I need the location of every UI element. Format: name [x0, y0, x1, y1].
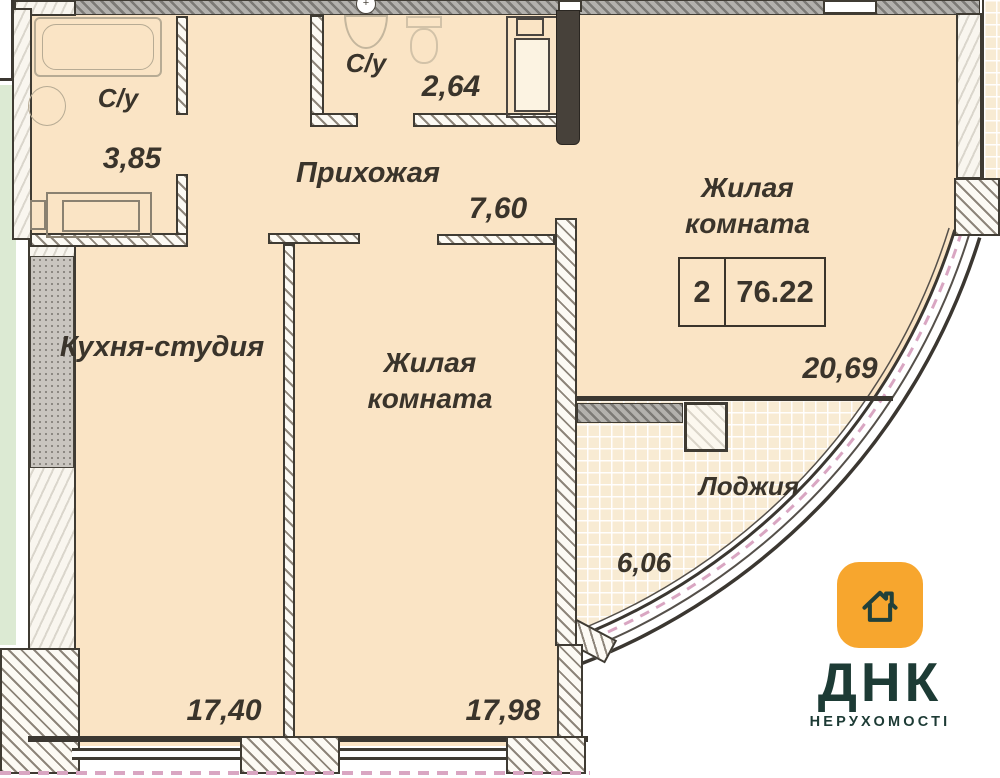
- wall-living-right: [956, 13, 982, 179]
- bathroom2-label: С/у: [336, 49, 396, 78]
- living-right-label: Жилая комната: [655, 170, 840, 242]
- wall-bathroom1-right-lower: [176, 174, 188, 236]
- wall-hallway-right: [437, 234, 555, 245]
- hallway-area: 7,60: [458, 192, 538, 225]
- kitchen-area: 17,40: [176, 694, 272, 727]
- bathroom1-label: С/у: [88, 84, 148, 113]
- column-loggia: [684, 402, 728, 452]
- wall-divider-living: [555, 218, 577, 646]
- logo-title: ДНК: [790, 650, 970, 714]
- wall-dark-vertical: [556, 10, 580, 145]
- cabinet-inner: [514, 38, 550, 112]
- logo-subtitle: НЕРУХОМОСТІ: [790, 714, 970, 730]
- toilet-tank: [406, 16, 442, 28]
- floor-plan: + С/у 3,85 С/у 2,64: [0, 0, 1000, 778]
- wall-divider-kitchen: [283, 244, 295, 738]
- pier-bottom-right: [506, 736, 586, 774]
- toilet: [410, 28, 438, 64]
- living-middle-line2: комната: [345, 381, 515, 417]
- bathtub-inner: [42, 24, 154, 70]
- loggia-boundary-line: [577, 396, 893, 401]
- bathroom2-area: 2,64: [406, 70, 496, 103]
- loggia-label: Лоджия: [686, 472, 812, 501]
- loggia-parapet: [577, 403, 683, 423]
- wall-bathroom1-right-upper: [176, 16, 188, 115]
- logo-badge: [837, 562, 923, 648]
- pier-bottom-mid: [240, 736, 340, 774]
- cabinet-top-box: [516, 18, 544, 36]
- pier-loggia: [557, 644, 583, 738]
- living-middle-line1: Жилая: [345, 345, 515, 381]
- bathroom1-area: 3,85: [92, 142, 172, 175]
- living-middle-label: Жилая комната: [345, 345, 515, 417]
- hallway-label: Прихожая: [288, 158, 448, 190]
- wall-hallway-left: [268, 233, 360, 244]
- wall-notch: [823, 0, 877, 14]
- column-facade-top: [954, 178, 1000, 236]
- column-corner: [0, 648, 80, 774]
- sink: [28, 86, 66, 126]
- window-bottom-2: [340, 748, 506, 760]
- axis-line-pink: [0, 771, 590, 775]
- wall-bathroom2-left: [310, 15, 324, 115]
- loggia-area: 6,06: [604, 548, 684, 579]
- living-right-area: 20,69: [792, 352, 888, 385]
- washing-machine-side: [30, 200, 46, 230]
- window-bottom-1: [72, 748, 240, 760]
- wall-left-upper: [12, 8, 32, 240]
- kitchen-label: Кухня-студия: [52, 332, 272, 364]
- living-middle-area: 17,98: [455, 694, 551, 727]
- living-right-line1: Жилая: [655, 170, 840, 206]
- house-icon: [853, 578, 907, 632]
- summary-total-area: 76.22: [726, 259, 824, 325]
- summary-rooms-count: 2: [680, 259, 726, 325]
- washing-machine-inner: [62, 200, 140, 232]
- wall-bathroom2-stub: [310, 113, 358, 127]
- living-right-line2: комната: [655, 206, 840, 242]
- summary-box: 2 76.22: [678, 257, 826, 327]
